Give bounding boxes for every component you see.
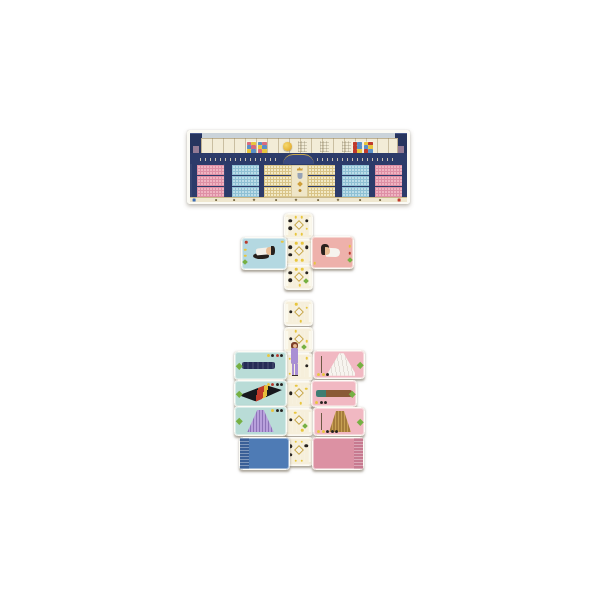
- diamond-icon: [297, 181, 303, 187]
- standee-leg-right: [295, 364, 298, 375]
- pink-grid-right-panel-3: [375, 187, 402, 197]
- yellow-marker: [299, 284, 302, 287]
- person-head: [322, 247, 330, 255]
- black-marker: [289, 279, 293, 283]
- cost-dot: [271, 383, 274, 386]
- bottom-track: [190, 197, 407, 202]
- black-marker: [289, 418, 293, 422]
- medal-icon: [298, 189, 301, 192]
- cost-dot: [280, 383, 283, 386]
- cost-dot: [331, 430, 334, 433]
- cost-dot: [271, 354, 274, 357]
- path-card-3[interactable]: [284, 265, 313, 290]
- bottom-mark-7: [317, 199, 319, 201]
- department-store-board: [187, 130, 410, 204]
- yellow-marker: [295, 459, 298, 462]
- crown-icon: [297, 167, 303, 171]
- pink-grid-left-panel-2: [197, 176, 224, 186]
- facade-windows-right: [317, 158, 397, 161]
- yellow-marker: [305, 306, 308, 309]
- facade-windows-left: [200, 158, 280, 161]
- dress-card-gold-fringe[interactable]: [313, 407, 365, 436]
- yellow-marker: [305, 228, 308, 231]
- black-marker: [289, 310, 293, 314]
- garment-stand: [321, 413, 323, 430]
- character-card-right[interactable]: [311, 236, 354, 269]
- cost-dot: [276, 383, 279, 386]
- black-marker: [289, 271, 293, 275]
- track-pattern-cell-3: [342, 141, 351, 152]
- cost-dot: [320, 401, 323, 404]
- cream-grid-left-panel-3: [264, 187, 291, 197]
- yellow-marker: [294, 411, 297, 414]
- model-standee[interactable]: [288, 342, 301, 377]
- track-pattern-cell-1: [298, 141, 307, 152]
- shield-icon: [297, 173, 302, 179]
- blue-grid-left-panel-3: [232, 187, 259, 197]
- cost-dot: [267, 354, 270, 357]
- cost-dot: [276, 409, 279, 412]
- cost-dot: [317, 430, 320, 433]
- cost-dot: [280, 354, 283, 357]
- cream-grid-left-panel-1: [264, 165, 291, 175]
- pink-grid-right-panel-1: [375, 165, 402, 175]
- pink-grid-left-panel-3: [197, 187, 224, 197]
- yellow-marker: [244, 255, 247, 258]
- yellow-marker: [301, 429, 304, 432]
- person-head: [266, 247, 274, 255]
- yellow-marker: [301, 268, 304, 271]
- yellow-marker: [295, 441, 298, 444]
- pink-grid-right-panel-2: [375, 176, 402, 186]
- cream-grid-right-panel-1: [308, 165, 335, 175]
- black-marker: [289, 227, 293, 231]
- cost-dot: [335, 430, 338, 433]
- yellow-marker: [299, 402, 302, 405]
- bottom-mark-5: [275, 199, 277, 201]
- yellow-marker: [301, 259, 304, 262]
- path-card-2[interactable]: [284, 239, 313, 265]
- black-marker: [289, 245, 293, 249]
- black-marker: [305, 364, 309, 368]
- standee-body: [291, 348, 298, 364]
- dress-card-brown-teal[interactable]: [311, 380, 357, 407]
- cost-dot: [326, 373, 329, 376]
- cost-dots: [267, 354, 284, 357]
- bottom-mark-9: [359, 199, 361, 201]
- cost-dot: [271, 409, 274, 412]
- cost-dots: [267, 383, 284, 386]
- garment-navy-column: [242, 362, 276, 369]
- dress-card-navy-column[interactable]: [234, 351, 287, 380]
- standee-feet: [292, 375, 298, 377]
- track-pattern-cell-2: [320, 141, 329, 152]
- person-illustration: [246, 241, 281, 266]
- cost-dots: [315, 401, 327, 404]
- yellow-marker: [295, 303, 298, 306]
- cream-grid-left-panel-2: [264, 176, 291, 186]
- yellow-marker: [295, 268, 298, 271]
- garment-brown-teal: [316, 390, 353, 397]
- dress-card-white-gown[interactable]: [313, 350, 365, 379]
- yellow-marker: [295, 330, 298, 333]
- yellow-marker: [305, 340, 308, 343]
- cream-grid-right-panel-2: [308, 176, 335, 186]
- red-marker: [348, 252, 351, 255]
- garment-black-red-gown: [239, 385, 282, 402]
- dress-card-purple-fringe[interactable]: [234, 406, 287, 436]
- gold-coin-token[interactable]: [283, 142, 292, 151]
- cost-dot: [322, 373, 325, 376]
- garment-stand: [321, 356, 323, 373]
- bonus-diamond: [357, 361, 363, 367]
- bonus-diamond: [236, 418, 242, 424]
- path-card-8[interactable]: [284, 408, 313, 436]
- black-marker: [304, 444, 308, 448]
- deck-card-blue[interactable]: [239, 437, 290, 470]
- tabletop-scene: [0, 0, 600, 600]
- yellow-marker: [301, 242, 304, 245]
- garment-white-gown: [328, 353, 355, 376]
- red-marker: [245, 241, 248, 244]
- bottom-mark-11: [398, 199, 401, 202]
- bottom-mark-6: [294, 198, 297, 201]
- bottom-mark-2: [215, 199, 217, 201]
- bottom-mark-10: [379, 199, 381, 201]
- cost-dots: [317, 430, 338, 433]
- black-marker: [289, 391, 293, 395]
- black-marker: [289, 337, 293, 341]
- cost-dot: [322, 430, 325, 433]
- path-card-1[interactable]: [284, 213, 313, 239]
- black-marker: [289, 253, 293, 257]
- yellow-marker: [305, 357, 308, 360]
- track-legend-4: [363, 141, 373, 153]
- cost-dot: [326, 430, 329, 433]
- facade-band: [190, 153, 407, 164]
- blue-grid-left-panel-2: [232, 176, 259, 186]
- track-legend-1: [246, 141, 256, 153]
- yellow-marker: [300, 441, 303, 444]
- standee-leg-left: [292, 364, 295, 375]
- cost-dot: [267, 383, 270, 386]
- track-legend-3: [352, 141, 362, 153]
- yellow-marker: [299, 320, 302, 323]
- bottom-mark-8: [336, 198, 339, 201]
- black-marker: [305, 219, 309, 223]
- bottom-mark-3: [233, 199, 235, 201]
- yellow-marker: [295, 384, 298, 387]
- yellow-marker: [244, 249, 247, 252]
- yellow-marker: [348, 245, 351, 248]
- black-marker: [305, 245, 309, 249]
- black-marker: [289, 219, 293, 223]
- cream-grid-right-panel-3: [308, 187, 335, 197]
- deck-card-pink[interactable]: [312, 437, 364, 470]
- bottom-mark-1: [193, 199, 196, 202]
- blue-grid-right-panel-1: [342, 165, 369, 175]
- bonus-diamond: [357, 418, 363, 424]
- path-card-4[interactable]: [284, 300, 313, 326]
- dress-card-black-red-gown[interactable]: [234, 380, 287, 407]
- yellow-marker: [295, 259, 298, 262]
- yellow-marker: [314, 262, 317, 265]
- cost-dot: [276, 354, 279, 357]
- cost-dots: [317, 373, 329, 376]
- character-card-left[interactable]: [241, 237, 287, 270]
- person-illustration: [316, 240, 349, 265]
- yellow-marker: [300, 233, 303, 236]
- cost-dot: [324, 401, 327, 404]
- yellow-marker: [295, 233, 298, 236]
- center-column: [291, 165, 308, 197]
- yellow-marker: [281, 240, 284, 243]
- bottom-mark-4: [252, 198, 255, 201]
- blue-grid-right-panel-2: [342, 176, 369, 186]
- cost-dots: [271, 409, 283, 412]
- path-card-7[interactable]: [284, 381, 313, 408]
- cost-dot: [315, 401, 318, 404]
- track-legend-2: [257, 141, 267, 153]
- yellow-marker: [300, 459, 303, 462]
- yellow-marker: [300, 216, 303, 219]
- cost-dot: [317, 373, 320, 376]
- black-marker: [305, 271, 309, 275]
- yellow-marker: [305, 387, 308, 390]
- pink-grid-left-panel-1: [197, 165, 224, 175]
- garment-purple-fringe: [247, 410, 274, 432]
- blue-grid-right-panel-3: [342, 187, 369, 197]
- yellow-marker: [295, 216, 298, 219]
- cost-dot: [280, 409, 283, 412]
- yellow-marker: [295, 242, 298, 245]
- blue-grid-left-panel-1: [232, 165, 259, 175]
